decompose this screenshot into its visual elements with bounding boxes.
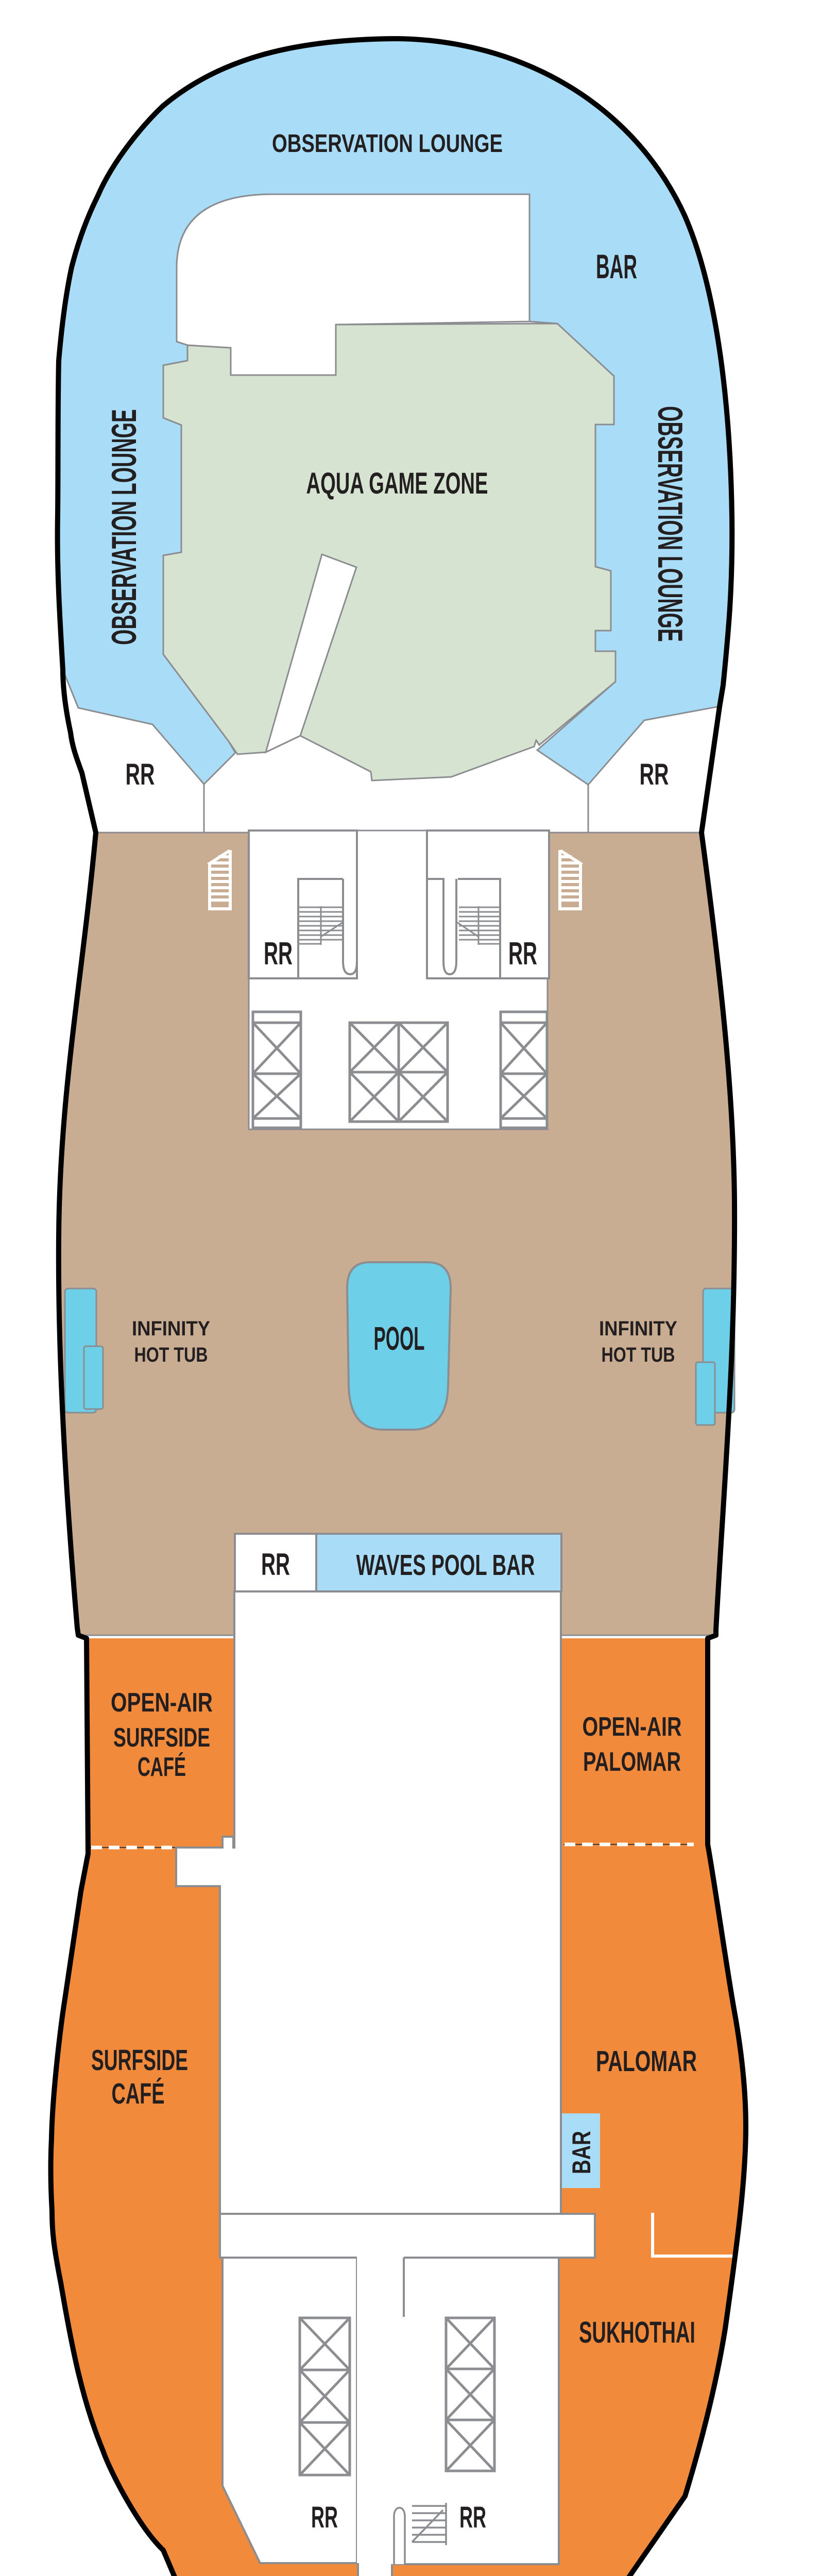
svg-text:BAR: BAR [596,247,637,285]
svg-text:SURFSIDE: SURFSIDE [113,1723,210,1753]
svg-text:PALOMAR: PALOMAR [596,2045,697,2078]
svg-text:RR: RR [126,758,155,791]
svg-text:RR: RR [459,2501,486,2534]
svg-text:POOL: POOL [374,1320,425,1357]
svg-text:HOT TUB: HOT TUB [602,1344,675,1366]
svg-text:WAVES POOL BAR: WAVES POOL BAR [356,1549,535,1582]
svg-text:RR: RR [311,2501,338,2534]
svg-text:RR: RR [508,936,537,972]
svg-text:CAFÉ: CAFÉ [112,2077,165,2110]
svg-text:INFINITY: INFINITY [599,1317,677,1340]
svg-text:INFINITY: INFINITY [132,1317,210,1340]
svg-text:RR: RR [264,936,293,972]
svg-text:BAR: BAR [567,2131,596,2174]
svg-text:OBSERVATION LOUNGE: OBSERVATION LOUNGE [105,409,144,645]
svg-text:OPEN-AIR: OPEN-AIR [111,1688,213,1718]
svg-text:HOT TUB: HOT TUB [134,1344,208,1366]
svg-text:SUKHOTHAI: SUKHOTHAI [579,2316,695,2349]
svg-text:OPEN-AIR: OPEN-AIR [583,1712,682,1742]
svg-text:AQUA GAME ZONE: AQUA GAME ZONE [306,467,488,500]
svg-text:SURFSIDE: SURFSIDE [91,2044,188,2077]
svg-text:PALOMAR: PALOMAR [583,1747,681,1777]
svg-text:OBSERVATION LOUNGE: OBSERVATION LOUNGE [272,130,503,158]
svg-text:RR: RR [261,1547,290,1582]
svg-text:RR: RR [640,758,669,791]
svg-text:OBSERVATION LOUNGE: OBSERVATION LOUNGE [651,406,690,642]
svg-text:CAFÉ: CAFÉ [138,1752,186,1782]
